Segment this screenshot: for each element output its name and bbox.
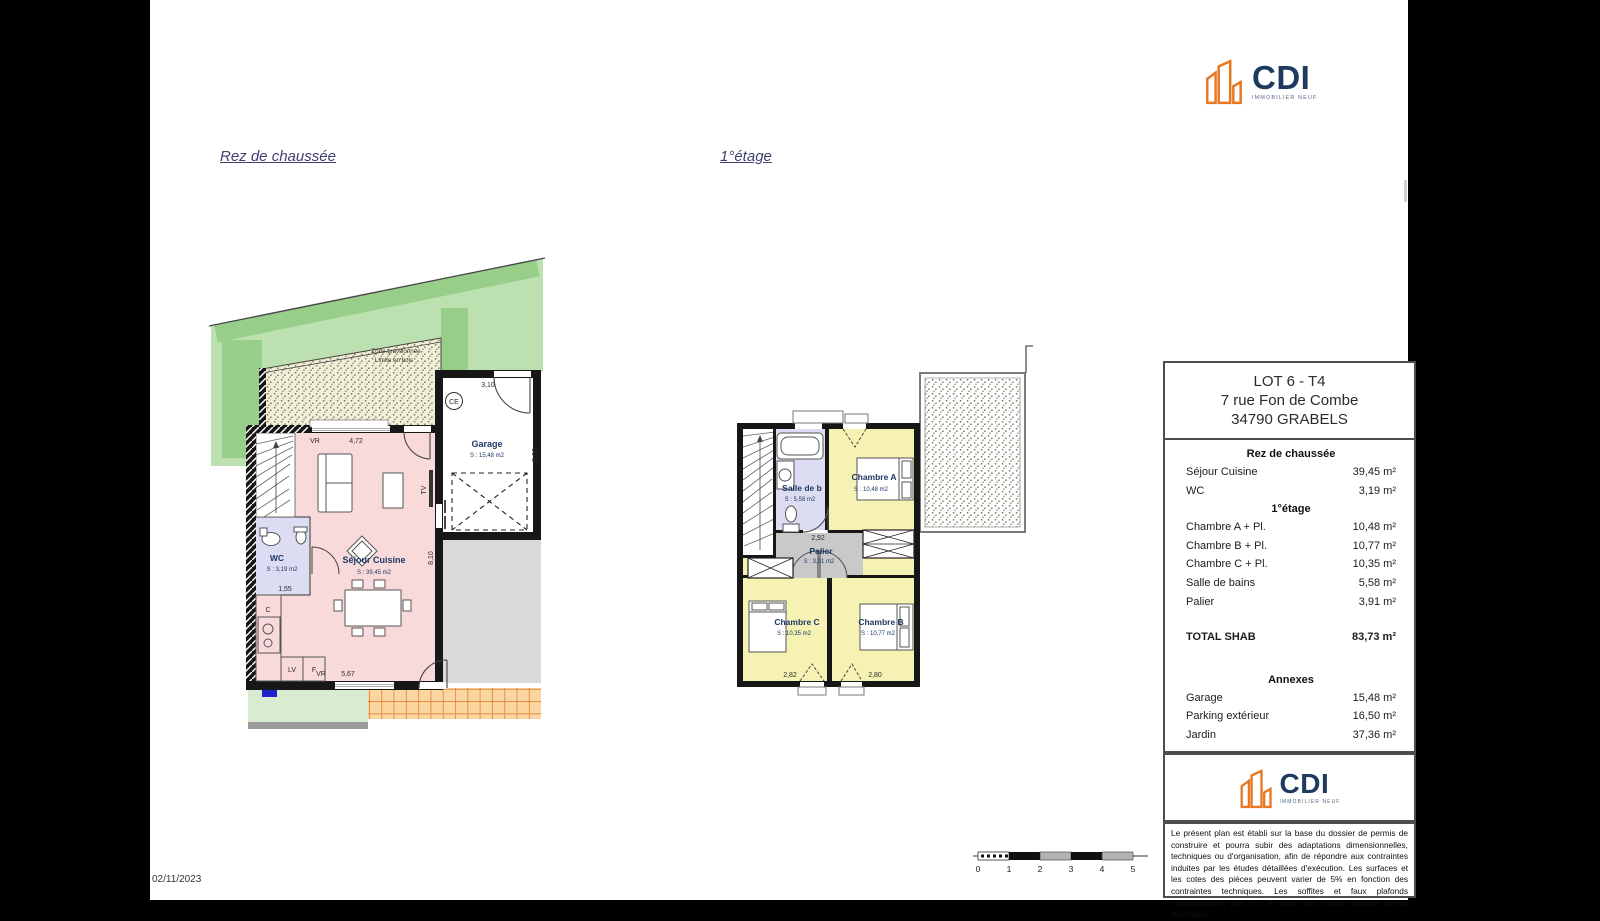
row-label: Chambre C + Pl.: [1186, 555, 1268, 574]
row-value: 3,91 m²: [1359, 593, 1396, 612]
cdi-logo-tagline: IMMOBILIER NEUF: [1252, 96, 1317, 102]
total-value: 83,73 m²: [1352, 628, 1396, 647]
chambre-b-width-dim: 2,80: [868, 672, 882, 679]
bathroom-name-label: Salle de b: [782, 483, 822, 493]
scale-tick-4: 4: [1100, 864, 1105, 874]
ce-label: CE: [449, 399, 459, 406]
ground-stairs: [256, 433, 295, 517]
scale-tick-3: 3: [1069, 864, 1074, 874]
scale-tick-1: 1: [1007, 864, 1012, 874]
chambre-a-name-label: Chambre A: [851, 472, 896, 482]
cdi-logo-top: CDI IMMOBILIER NEUF: [1203, 57, 1317, 105]
scale-tick-5: 5: [1131, 864, 1136, 874]
total-row: TOTAL SHAB 83,73 m²: [1186, 628, 1396, 647]
row-value: 16,50 m²: [1353, 707, 1396, 726]
vr-bottom-label: VR: [316, 671, 326, 678]
right-letterbox: [1408, 0, 1600, 900]
chambre-c-area-label: S : 10,35 m2: [777, 631, 812, 637]
row-label: Garage: [1186, 689, 1223, 708]
garage-area-label: S : 15,48 m2: [470, 453, 505, 459]
table-row: Jardin 37,36 m²: [1186, 726, 1396, 745]
table-row: Séjour Cuisine 39,45 m²: [1186, 463, 1396, 482]
table-row: Chambre C + Pl. 10,35 m²: [1186, 555, 1396, 574]
vr-top-label: VR: [310, 438, 320, 445]
table-row: Parking extérieur 16,50 m²: [1186, 707, 1396, 726]
row-label: Séjour Cuisine: [1186, 463, 1258, 482]
wc-width-dim: 1,55: [278, 586, 292, 593]
bathroom-area-label: S : 5,58 m2: [785, 497, 816, 503]
disclaimer-box: Le présent plan est établi sur la base d…: [1163, 822, 1416, 898]
row-value: 3,19 m²: [1359, 482, 1396, 501]
cdi-logo-name: CDI: [1252, 61, 1317, 94]
wc-area-label: S : 3,19 m2: [267, 567, 298, 573]
row-label: Salle de bains: [1186, 574, 1255, 593]
bottom-width-dim: 5,67: [341, 671, 355, 678]
cdi-logo-box: CDI IMMOBILIER NEUF: [1163, 753, 1416, 822]
areas-table: Rez de chaussée Séjour Cuisine 39,45 m² …: [1165, 440, 1414, 745]
screenshot-root: { "date": "02/11/2023", "titles": { "gro…: [0, 0, 1600, 900]
lot-header: LOT 6 - T4 7 rue Fon de Combe 34790 GRAB…: [1165, 363, 1414, 440]
sejour-height-dim: 8,10: [428, 551, 435, 565]
roof-gravel-area: [920, 346, 1033, 532]
row-label: Jardin: [1186, 726, 1216, 745]
palier-name-label: Palier: [809, 546, 833, 556]
gravel-zone-label-1: Zone gravillonnée: [371, 348, 421, 355]
lot-number: LOT 6 - T4: [1254, 372, 1326, 391]
palier-width-dim: 2,92: [811, 535, 825, 542]
section-header-annexes: Annexes: [1186, 671, 1396, 689]
cdi-building-icon: [1203, 57, 1247, 105]
exterior-parking-area: [443, 540, 541, 683]
table-row: Palier 3,91 m²: [1186, 593, 1396, 612]
left-letterbox: [0, 0, 150, 900]
chambre-b-name-label: Chambre B: [858, 617, 903, 627]
first-floor-plan: Salle de b S : 5,58 m2 Chambre A S : 10,…: [737, 346, 1033, 695]
row-label: Chambre B + Pl.: [1186, 537, 1267, 556]
row-value: 37,36 m²: [1353, 726, 1396, 745]
scale-bar: 0 1 2 3 4 5: [972, 845, 1152, 877]
chambre-a-area-label: S : 10,48 m2: [854, 487, 889, 493]
plan-date: 02/11/2023: [152, 874, 201, 885]
sidewalk-strip: [248, 722, 368, 729]
lot-address-city: 34790 GRABELS: [1231, 410, 1348, 429]
row-value: 10,48 m²: [1353, 518, 1396, 537]
row-label: Parking extérieur: [1186, 707, 1269, 726]
ground-floor-plan: Zone gravillonnée Limite en bois: [209, 258, 545, 729]
garage-depth-dim: 5,00: [532, 448, 539, 462]
row-value: 5,58 m²: [1359, 574, 1396, 593]
top-width-dim: 4,72: [349, 438, 363, 445]
chambre-c-width-dim: 2,82: [783, 672, 797, 679]
scale-tick-2: 2: [1038, 864, 1043, 874]
tv-label: TV: [421, 485, 428, 494]
cdi-logo-name: CDI: [1280, 770, 1341, 798]
first-stairs-area: [743, 429, 775, 555]
table-row: Chambre A + Pl. 10,48 m²: [1186, 518, 1396, 537]
palier-area-label: S : 3,91 m2: [804, 559, 835, 565]
cdi-logo-bottom: CDI IMMOBILIER NEUF: [1239, 767, 1341, 809]
terrace-tiles: [368, 688, 541, 719]
lot-info-panel: LOT 6 - T4 7 rue Fon de Combe 34790 GRAB…: [1163, 361, 1416, 753]
cdi-logo-tagline: IMMOBILIER NEUF: [1280, 800, 1341, 805]
ground-floor-title: Rez de chaussée: [220, 148, 336, 165]
row-value: 10,77 m²: [1353, 537, 1396, 556]
table-row: Garage 15,48 m²: [1186, 689, 1396, 708]
closet-label: C: [265, 607, 270, 614]
row-label: WC: [1186, 482, 1204, 501]
table-row: Salle de bains 5,58 m²: [1186, 574, 1396, 593]
chambre-b-area-label: S : 10,77 m2: [861, 631, 896, 637]
row-label: Chambre A + Pl.: [1186, 518, 1266, 537]
sejour-area-label: S : 39,45 m2: [357, 570, 392, 576]
row-value: 10,35 m²: [1353, 555, 1396, 574]
garage-name-label: Garage: [471, 439, 502, 449]
cdi-building-icon: [1239, 767, 1275, 809]
lot-address-street: 7 rue Fon de Combe: [1221, 391, 1359, 410]
row-value: 15,48 m²: [1353, 689, 1396, 708]
section-header-rdc: Rez de chaussée: [1186, 445, 1396, 463]
chambre-c-name-label: Chambre C: [774, 617, 819, 627]
sejour-name-label: Séjour Cuisine: [342, 555, 405, 565]
row-label: Palier: [1186, 593, 1214, 612]
page-edge-mark: [1404, 180, 1407, 202]
garage-width-dim: 3,10: [481, 382, 495, 389]
scale-tick-0: 0: [976, 864, 981, 874]
row-value: 39,45 m²: [1353, 463, 1396, 482]
table-row: Chambre B + Pl. 10,77 m²: [1186, 537, 1396, 556]
total-label: TOTAL SHAB: [1186, 628, 1256, 647]
table-row: WC 3,19 m²: [1186, 482, 1396, 501]
wc-name-label: WC: [270, 553, 284, 563]
dishwasher-label: LV: [288, 667, 296, 674]
gravel-zone-label-2: Limite en bois: [375, 357, 413, 364]
floor-plans-drawing: Zone gravillonnée Limite en bois: [150, 230, 1050, 740]
first-floor-title: 1°étage: [720, 148, 772, 165]
section-header-etage: 1°étage: [1186, 500, 1396, 518]
